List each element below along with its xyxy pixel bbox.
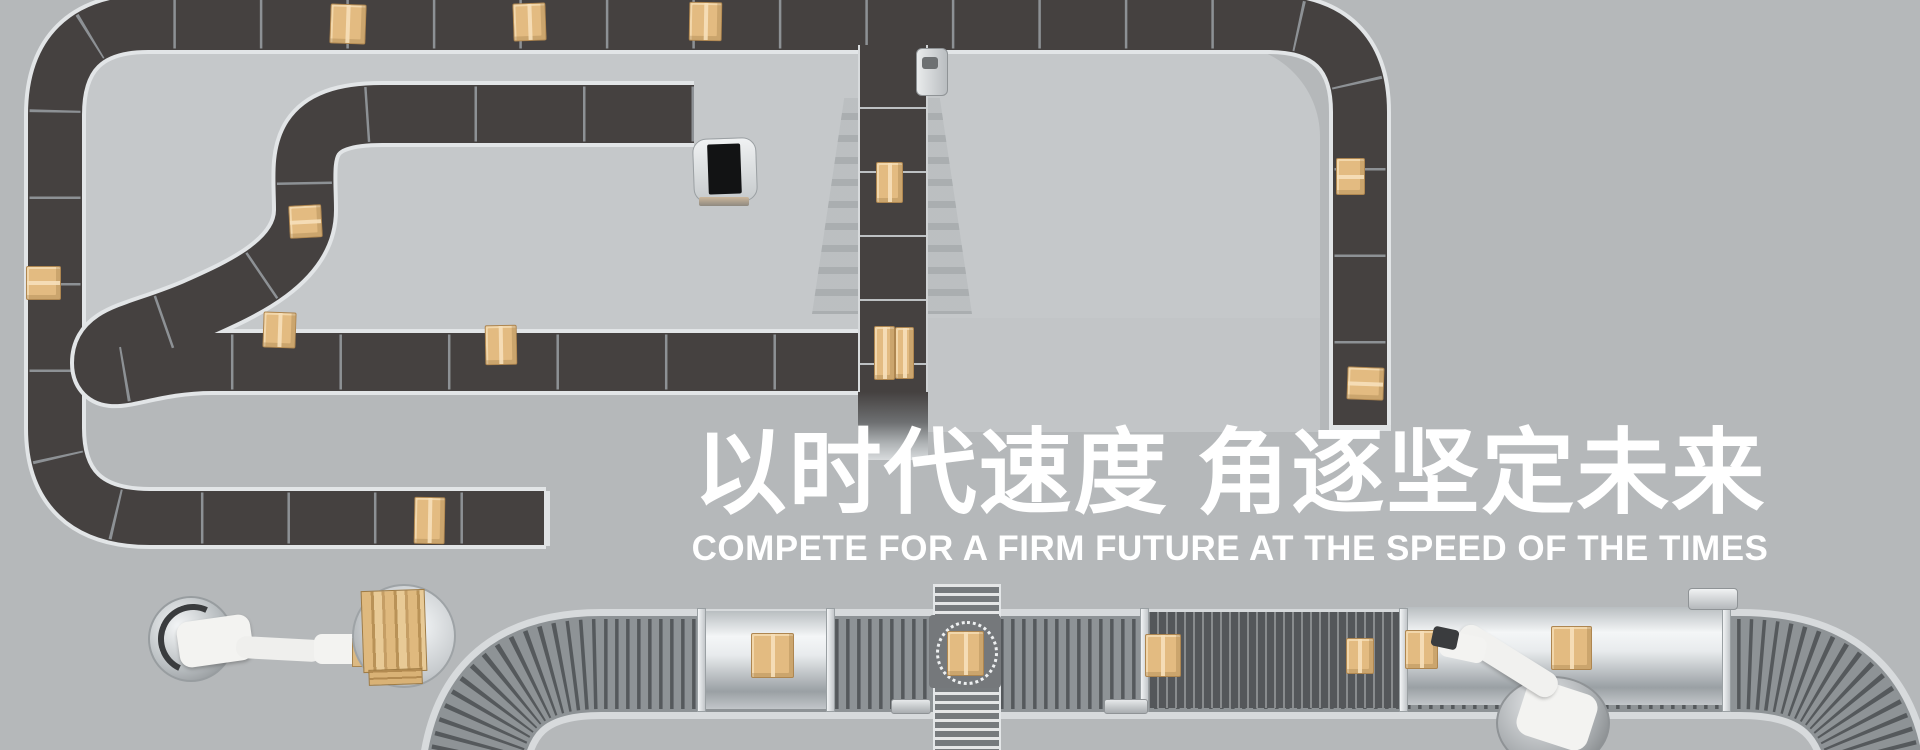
parcel-box	[26, 266, 61, 300]
parcel-tape	[1337, 175, 1364, 179]
parcel-tape	[1358, 639, 1362, 673]
parcel-box	[751, 633, 794, 678]
parcel-box	[288, 204, 323, 239]
parcel-box	[512, 2, 546, 41]
parcel-box	[1145, 634, 1181, 677]
parcel-tape	[883, 327, 887, 379]
parcel-tape	[1161, 635, 1165, 676]
parcel-tape	[771, 634, 775, 677]
parcel-tape	[527, 4, 532, 40]
parcel-tape	[345, 5, 350, 43]
parcel-box	[874, 326, 895, 380]
line-scanner-icon	[1688, 588, 1738, 610]
parcel-tape	[964, 632, 968, 675]
scanner-body	[692, 137, 758, 203]
pallet-plank-stack	[361, 589, 428, 673]
parcel-tape	[427, 498, 432, 543]
belt-end-cap	[544, 491, 550, 546]
parcel-box	[1346, 638, 1374, 674]
scanner-screen	[707, 143, 742, 194]
segment-cap	[826, 608, 835, 712]
parcel-box	[876, 162, 903, 203]
parcel-box	[1346, 366, 1384, 400]
parcel-box	[414, 497, 446, 545]
headline-block: 以时代速度 角逐坚定未来 COMPETE FOR A FIRM FUTURE A…	[560, 424, 1900, 569]
headline-english: COMPETE FOR A FIRM FUTURE AT THE SPEED O…	[560, 529, 1900, 569]
parcel-box	[1551, 626, 1592, 670]
parcel-box	[1336, 158, 1365, 195]
parcel-box	[689, 2, 723, 42]
scanner-base	[699, 197, 749, 206]
parcel-tape	[1348, 381, 1383, 386]
parcel-tape	[703, 3, 708, 40]
parcel-box	[485, 325, 518, 366]
parcel-tape	[888, 163, 892, 202]
parcel-tape	[903, 328, 907, 378]
parcel-tape	[290, 219, 321, 225]
parcel-box	[262, 311, 296, 348]
robot-arm-link	[235, 636, 322, 662]
banner-scene: 以时代速度 角逐坚定未来 COMPETE FOR A FIRM FUTURE A…	[0, 0, 1920, 750]
conveyor-foot	[891, 699, 931, 714]
parcel-tape	[1420, 631, 1424, 668]
parcel-tape	[1570, 627, 1574, 669]
parcel-tape	[27, 281, 60, 285]
parcel-box	[947, 631, 984, 676]
conveyor-foot	[1104, 699, 1148, 714]
segment-cap	[1722, 608, 1731, 712]
headline-chinese: 以时代速度 角逐坚定未来	[560, 424, 1900, 523]
parcel-tape	[499, 326, 504, 364]
parcel-tape	[277, 313, 282, 347]
tower-diverter-icon	[916, 48, 948, 96]
segment-cap	[697, 608, 706, 712]
parcel-box	[329, 3, 366, 44]
parcel-box	[895, 327, 914, 379]
